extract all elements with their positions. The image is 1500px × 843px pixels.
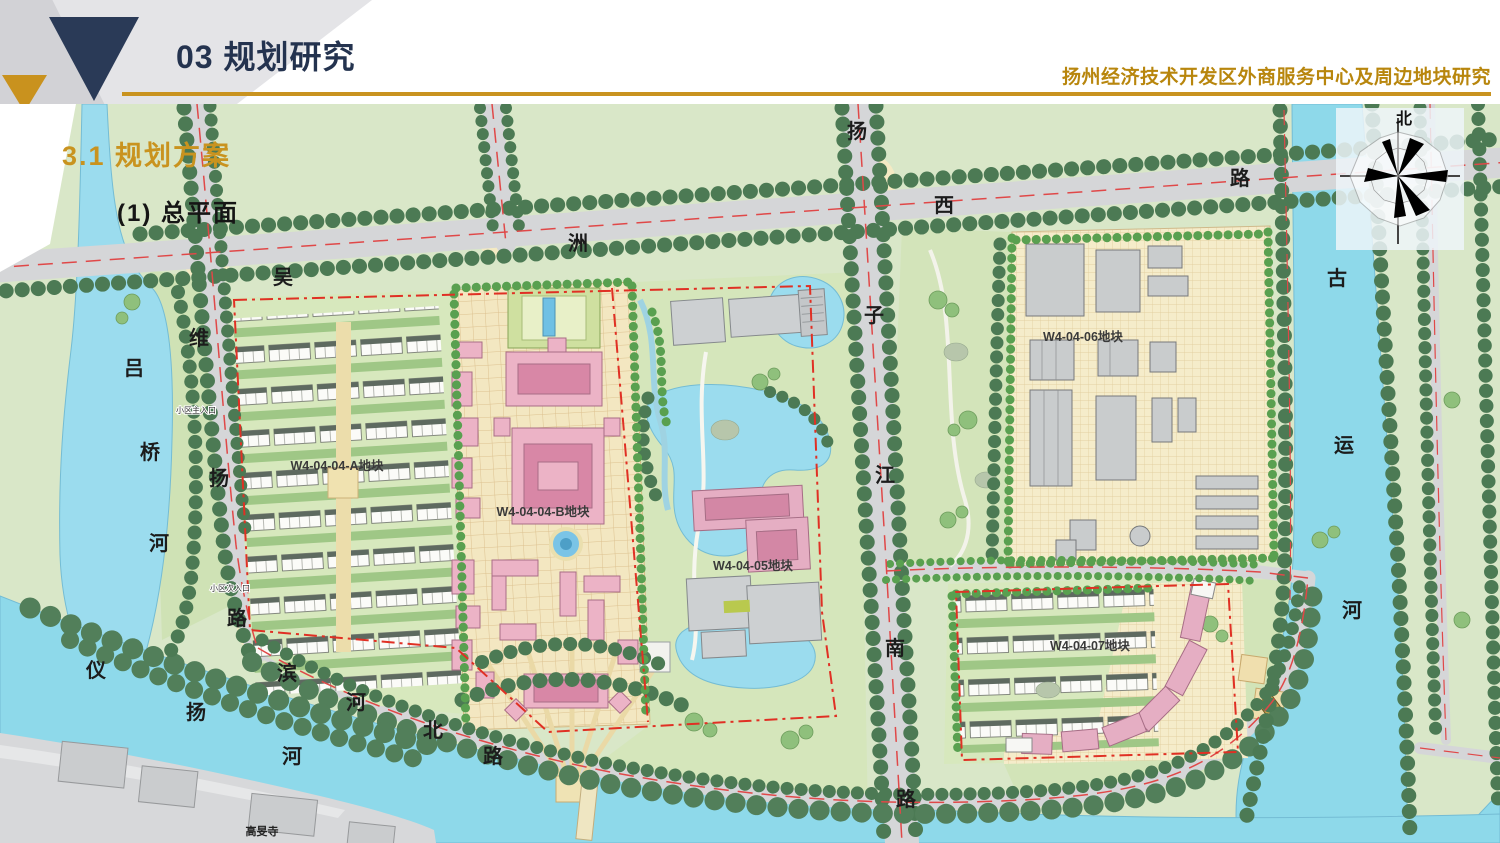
road-label-wuzhou-3: 西 [934, 195, 954, 217]
river-label-guyun-2: 运 [1334, 434, 1354, 457]
river-label-guyun-1: 古 [1327, 266, 1347, 290]
compass-rose: 北 [1336, 108, 1464, 250]
section-label: 3.1 规划方案 [62, 134, 231, 173]
river-label-lvqiao-3: 河 [149, 532, 169, 555]
plot-w4-04-04-a [230, 290, 464, 714]
road-label-binhe-2: 河 [346, 691, 366, 714]
road-label-wuzhou-1: 吴 [273, 266, 293, 289]
page-title: 03 规划研究 [176, 32, 356, 78]
road-label-binhe-4: 路 [483, 744, 504, 768]
road-label-binhe-1: 滨 [277, 661, 297, 685]
gold-divider [122, 92, 1491, 96]
plot-label-w4-04-04-b: W4-04-04-B地块 [496, 504, 590, 519]
river-label-lvqiao-2: 桥 [140, 441, 161, 464]
river-label-lvqiao-1: 吕 [124, 358, 144, 380]
road-label-yzjn-5: 路 [896, 787, 917, 811]
plot-label-w4-04-06: W4-04-06地块 [1043, 329, 1123, 344]
road-label-weiyang-3: 路 [227, 606, 248, 630]
slide: 03 规划研究 扬州经济技术开发区外商服务中心及周边地块研究 3.1 规划方案 … [0, 0, 1500, 843]
subsection-label: (1) 总平面 [117, 193, 239, 228]
formal-pool [543, 298, 555, 336]
road-label-yzjn-1: 扬 [847, 120, 867, 143]
road-label-yzjn-2: 子 [864, 305, 884, 327]
compass-north-label: 北 [1396, 110, 1412, 128]
road-label-yzjn-4: 南 [885, 637, 905, 660]
plot-label-w4-04-05: W4-04-05地块 [713, 558, 793, 573]
document-title: 扬州经济技术开发区外商服务中心及周边地块研究 [1062, 62, 1491, 89]
river-label-yiyang-1: 仪 [85, 659, 107, 682]
plot-label-w4-04-07: W4-04-07地块 [1050, 638, 1130, 653]
road-label-wuzhou-4: 路 [1230, 166, 1251, 190]
river-label-yiyang-2: 扬 [186, 701, 206, 724]
gaomin-temple-label: 高旻寺 [246, 824, 279, 838]
road-label-yzjn-3: 江 [875, 464, 895, 487]
main-entrance-label: 小区主入口 [176, 405, 216, 415]
river-label-guyun-3: 河 [1342, 599, 1362, 622]
secondary-entrance-label: 小区次入口 [210, 583, 250, 593]
road-label-wuzhou-2: 洲 [568, 232, 588, 255]
road-label-binhe-3: 北 [423, 719, 443, 742]
plot-label-w4-04-04-a: W4-04-04-A地块 [290, 458, 384, 473]
river-label-yiyang-3: 河 [282, 745, 302, 768]
road-label-weiyang-2: 扬 [209, 467, 229, 490]
road-label-weiyang-1: 维 [189, 326, 209, 350]
